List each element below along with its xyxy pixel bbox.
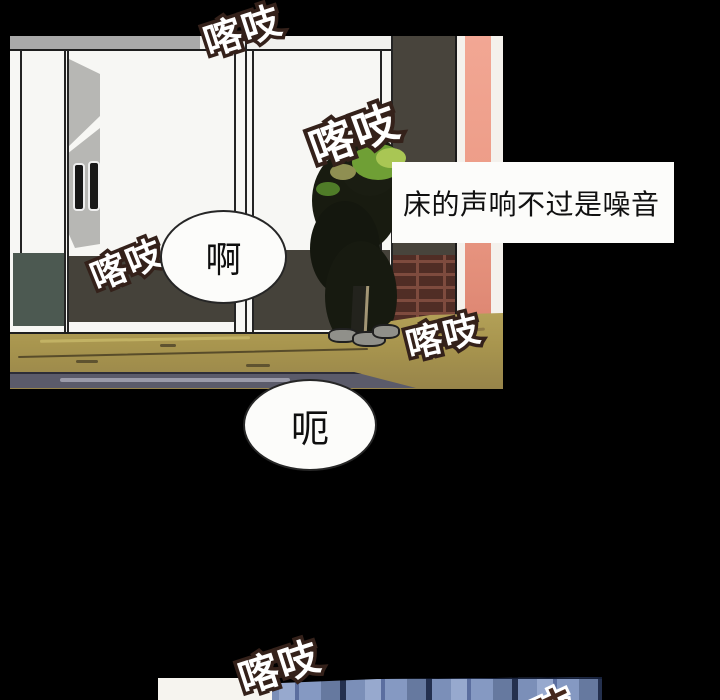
comic-page: 床的声响不过是噪音 喀吱 喀吱 喀吱 喀吱 喀吱 喀吱 喀吱 喀吱 啊 呃 喀吱… <box>0 0 720 700</box>
glass-reflection <box>67 58 100 248</box>
deck-knot <box>246 364 270 367</box>
deck-edge-strip <box>10 372 420 388</box>
speech-bubble-uh: 呃 <box>243 379 377 471</box>
tree-trunk <box>351 286 369 332</box>
left-door-dark-glass <box>13 253 65 326</box>
speech-bubble-ah: 啊 <box>160 210 287 304</box>
narration-caption: 床的声响不过是噪音 <box>392 162 674 243</box>
tree-highlight-green <box>316 182 340 196</box>
stone <box>372 324 400 339</box>
frame-line <box>64 50 66 334</box>
frame-line <box>67 50 69 334</box>
deck-knot <box>76 360 98 363</box>
brick-wall <box>392 255 455 325</box>
door-handle-left <box>73 163 85 211</box>
deck-edge-highlight <box>60 378 290 382</box>
speech-text: 啊 <box>205 231 241 283</box>
speech-text: 呃 <box>291 398 329 453</box>
door-top-rail-gray <box>10 36 200 49</box>
door-handle-right <box>88 161 100 211</box>
caption-text: 床的声响不过是噪音 <box>403 183 660 223</box>
deck-knot <box>160 344 176 347</box>
frame-line <box>20 50 22 253</box>
